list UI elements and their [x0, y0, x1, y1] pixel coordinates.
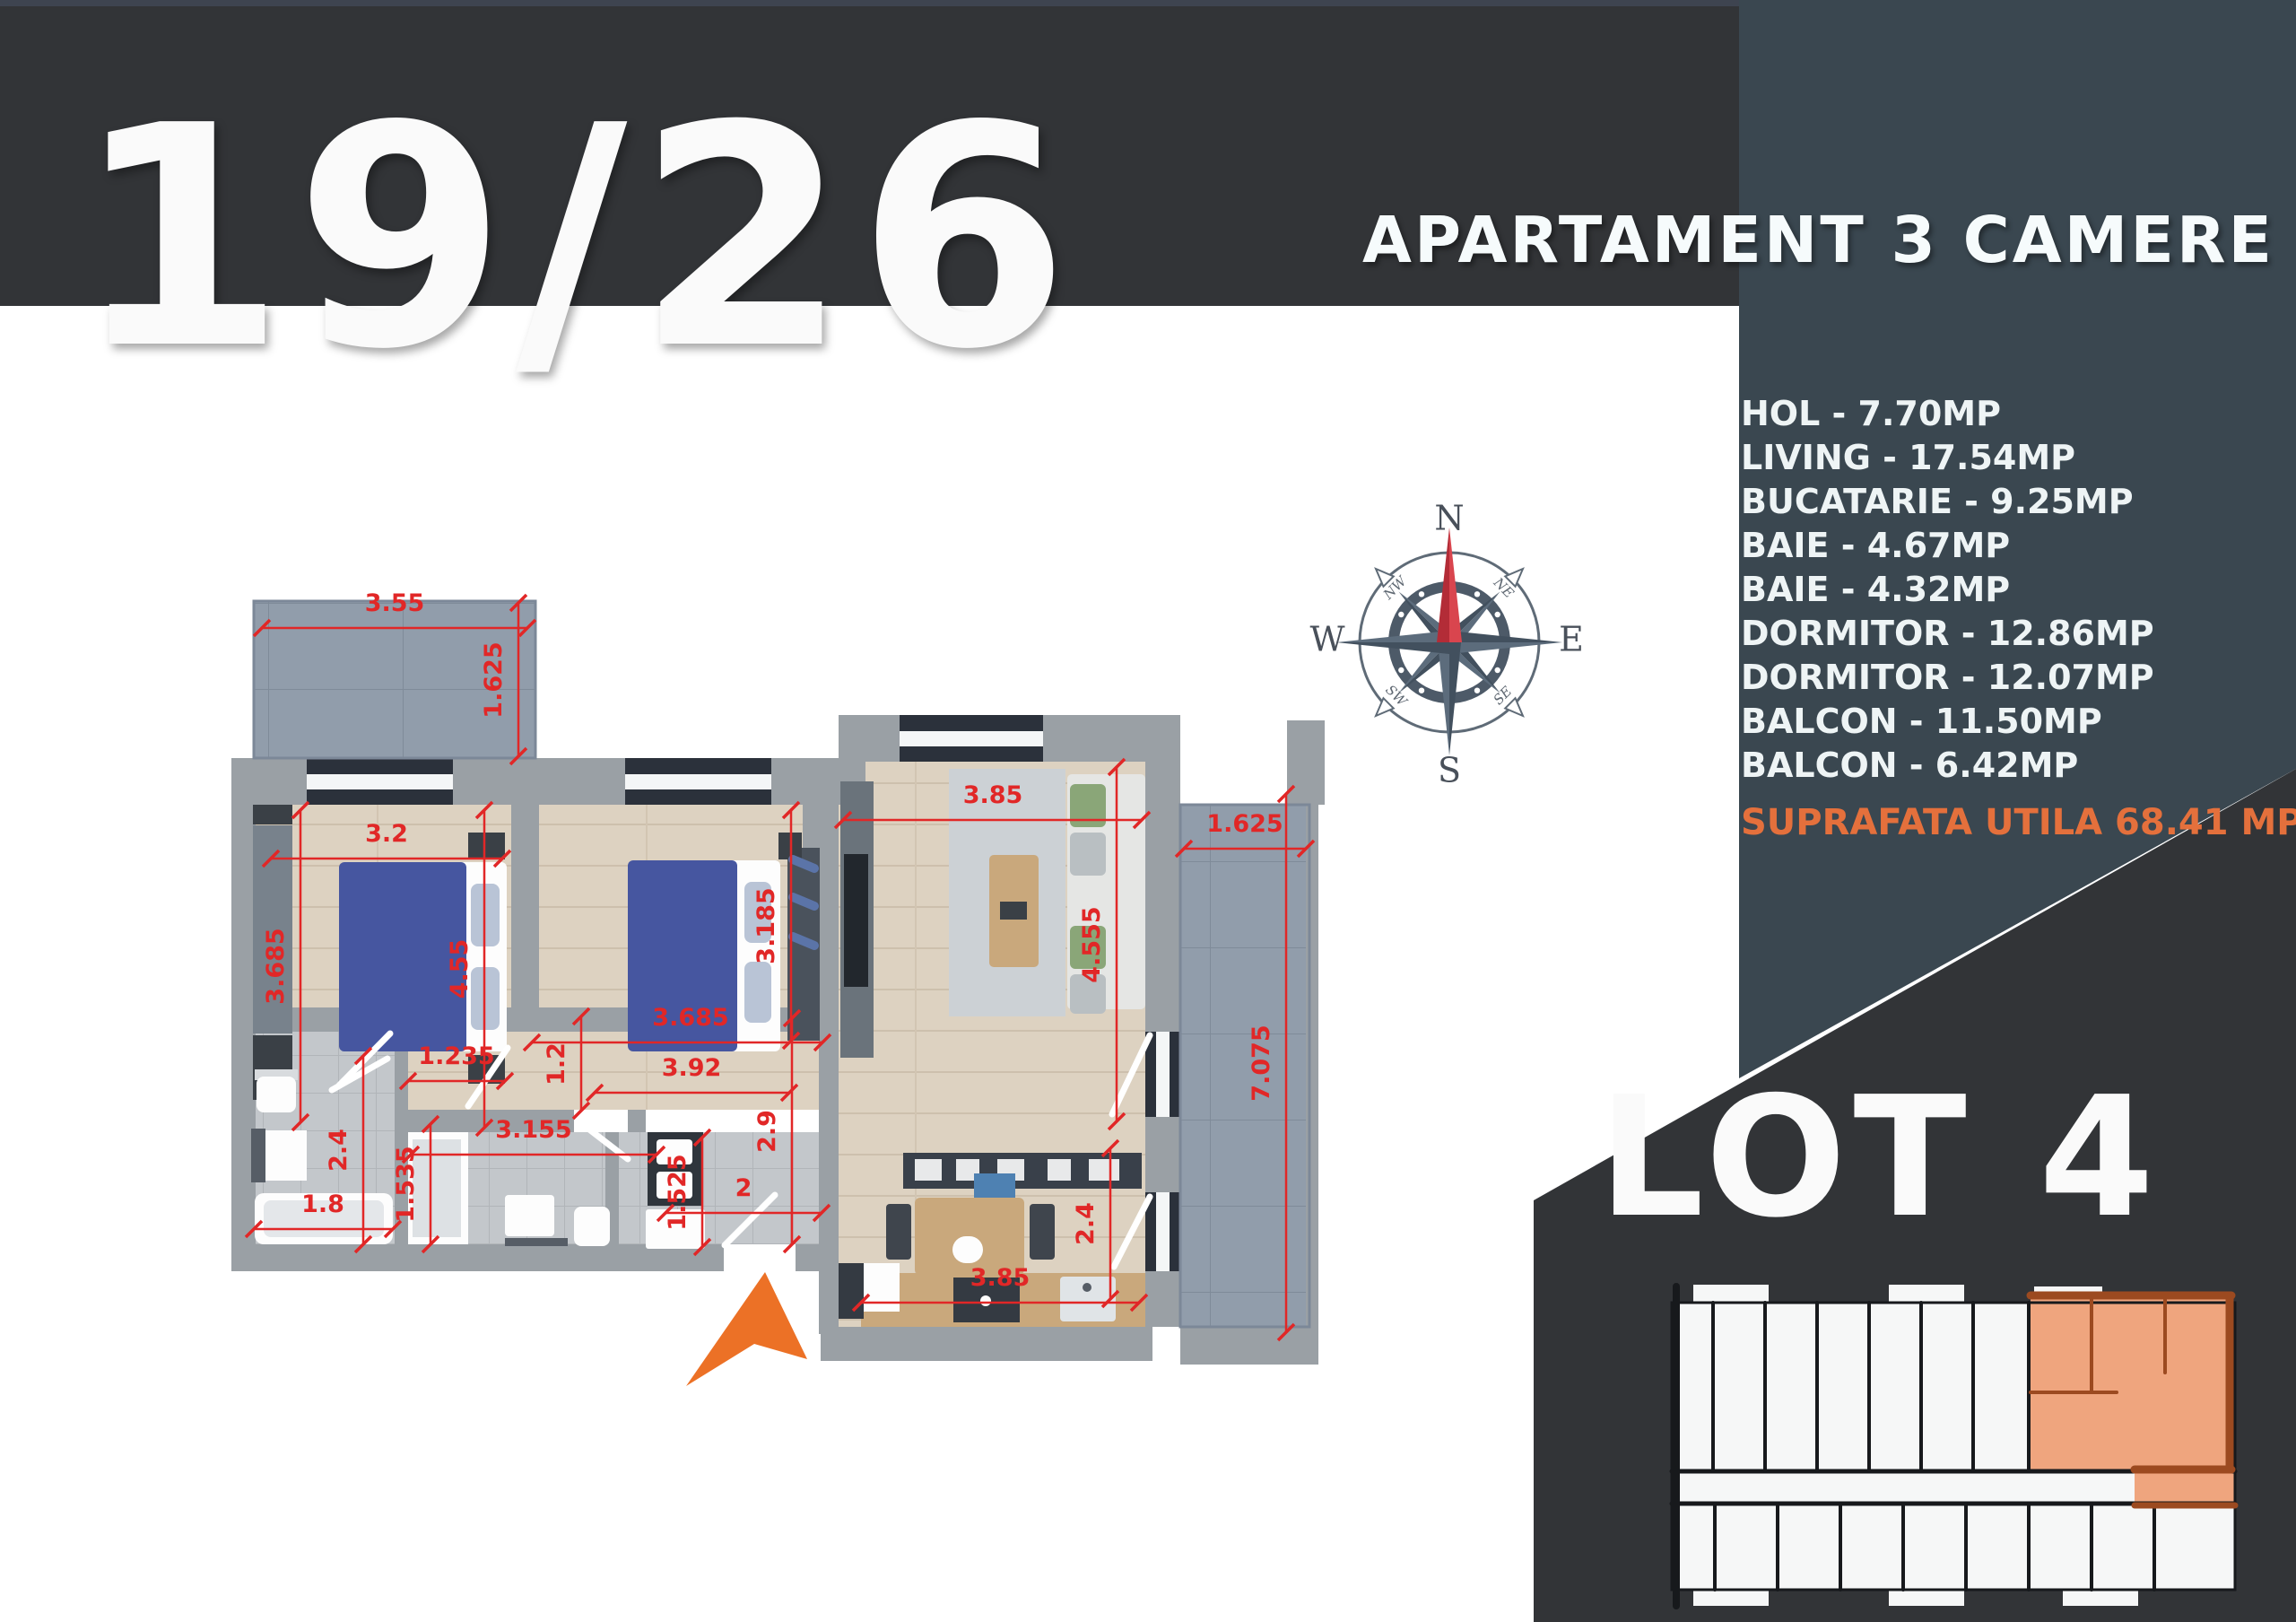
page-title: APARTAMENT 3 CAMERE [1362, 203, 2274, 277]
room-list: HOL - 7.70MP LIVING - 17.54MP BUCATARIE … [1741, 392, 2154, 788]
svg-text:3.185: 3.185 [752, 887, 780, 964]
room-list-item: BAIE - 4.32MP [1741, 568, 2154, 612]
svg-text:1.625: 1.625 [1206, 810, 1283, 838]
svg-text:1.2: 1.2 [543, 1042, 570, 1086]
room-list-item: DORMITOR - 12.86MP [1741, 612, 2154, 656]
svg-text:3.155: 3.155 [495, 1116, 571, 1144]
room-list-item: BUCATARIE - 9.25MP [1741, 480, 2154, 524]
svg-text:3.85: 3.85 [963, 781, 1023, 809]
room-list-item: LIVING - 17.54MP [1741, 436, 2154, 480]
room-list-item: DORMITOR - 12.07MP [1741, 656, 2154, 700]
svg-text:2.9: 2.9 [753, 1110, 781, 1153]
svg-text:3.85: 3.85 [970, 1264, 1031, 1292]
svg-text:1.8: 1.8 [301, 1190, 344, 1218]
entrance-arrow [686, 1272, 807, 1386]
svg-text:3.55: 3.55 [365, 589, 425, 617]
svg-text:3.685: 3.685 [652, 1004, 728, 1032]
surface-total: SUPRAFATA UTILA 68.41 MP [1741, 802, 2296, 843]
svg-text:2: 2 [735, 1174, 752, 1202]
svg-text:S: S [1438, 751, 1461, 790]
svg-text:3.92: 3.92 [662, 1054, 722, 1082]
svg-text:1.625: 1.625 [480, 641, 508, 718]
svg-text:4.555: 4.555 [1078, 906, 1106, 982]
svg-text:7.075: 7.075 [1248, 1025, 1275, 1101]
svg-text:N: N [1434, 499, 1464, 538]
room-list-item: HOL - 7.70MP [1741, 392, 2154, 436]
building-overview [1672, 1285, 2235, 1606]
svg-text:W: W [1309, 620, 1344, 659]
svg-text:E: E [1559, 620, 1584, 659]
unit-number: 19/26 [74, 86, 1078, 391]
room-list-item: BAIE - 4.67MP [1741, 524, 2154, 568]
svg-text:4.55: 4.55 [446, 939, 474, 999]
compass-rose: NSEWNESESWNW [1309, 499, 1583, 790]
room-list-item: BALCON - 11.50MP [1741, 700, 2154, 744]
svg-text:1.525: 1.525 [664, 1154, 691, 1230]
svg-text:1.535: 1.535 [392, 1146, 420, 1222]
svg-text:3.685: 3.685 [262, 928, 290, 1004]
lot-label: LOT 4 [1598, 1075, 2161, 1241]
svg-text:2.4: 2.4 [325, 1129, 352, 1172]
floor-plan [231, 601, 1325, 1365]
svg-text:2.4: 2.4 [1072, 1202, 1100, 1245]
svg-text:3.2: 3.2 [365, 820, 408, 848]
room-list-item: BALCON - 6.42MP [1741, 744, 2154, 788]
